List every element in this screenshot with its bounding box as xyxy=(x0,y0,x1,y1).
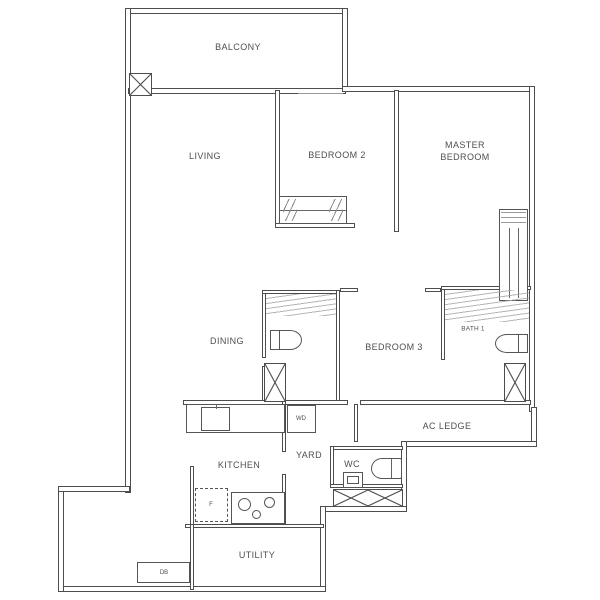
label-dining: DINING xyxy=(210,335,244,347)
wall-wc-bottom-inner xyxy=(330,484,403,488)
label-balcony: BALCONY xyxy=(215,41,261,53)
label-fridge: F xyxy=(209,501,213,509)
label-bath1: BATH 1 xyxy=(461,326,484,335)
wall-bedroom2-master xyxy=(394,90,399,232)
wall-kitchen-left-lower xyxy=(190,466,194,528)
bedroom2-wardrobe xyxy=(279,196,347,224)
wc-bathtub-icon xyxy=(371,458,402,479)
bath2-shower-hatch xyxy=(266,294,336,316)
label-db: DB xyxy=(160,569,168,577)
wall-utility-right xyxy=(320,506,326,592)
wall-wc-top xyxy=(330,446,403,450)
wall-right-upper xyxy=(529,86,535,412)
label-master-line1: MASTER xyxy=(445,140,485,150)
column-bath1-icon xyxy=(504,363,526,402)
wc-basin-icon xyxy=(343,472,363,488)
stove-icon xyxy=(231,492,285,524)
column-bath2-icon xyxy=(264,363,286,402)
wall-balcony-right xyxy=(342,8,348,92)
wall-balcony-top xyxy=(125,8,348,14)
wall-ac-ledge-bottom xyxy=(401,441,537,447)
label-wc: WC xyxy=(344,458,360,470)
wall-ac-ledge-left xyxy=(354,404,358,442)
wall-bath2-right xyxy=(336,290,340,404)
wall-bedroom3-top-left xyxy=(340,288,358,292)
label-utility: UTILITY xyxy=(239,549,275,561)
kitchen-sink-icon xyxy=(201,407,230,431)
column-balcony-icon xyxy=(129,73,152,96)
floor-plan-canvas: BALCONY LIVING BEDROOM 2 MASTER BEDROOM … xyxy=(0,0,600,600)
wall-left-step xyxy=(58,486,130,492)
wall-top-main xyxy=(342,86,535,92)
label-bedroom2: BEDROOM 2 xyxy=(308,149,366,161)
label-washer-dryer: WD xyxy=(296,415,306,423)
wall-utility-left xyxy=(190,524,194,590)
label-master-line2: BEDROOM xyxy=(440,152,489,162)
ac-unit-icon xyxy=(333,489,403,507)
master-wardrobe xyxy=(499,209,528,301)
wall-utility-top xyxy=(185,524,324,528)
label-kitchen: KITCHEN xyxy=(218,459,260,471)
wall-wc-left xyxy=(330,446,334,488)
label-ac-ledge: AC LEDGE xyxy=(423,420,472,432)
bath1-shower-hatch xyxy=(445,290,529,322)
wall-bedroom3-top-right xyxy=(425,288,441,292)
bath2-toilet-icon xyxy=(270,330,302,350)
label-bedroom3: BEDROOM 3 xyxy=(365,341,423,353)
bath1-toilet-icon xyxy=(495,334,528,353)
label-master-bedroom: MASTER BEDROOM xyxy=(440,139,489,163)
label-living: LIVING xyxy=(189,150,221,162)
label-yard: YARD xyxy=(296,449,322,461)
balcony-door-opening xyxy=(298,89,343,94)
wall-left-lower xyxy=(58,486,64,592)
